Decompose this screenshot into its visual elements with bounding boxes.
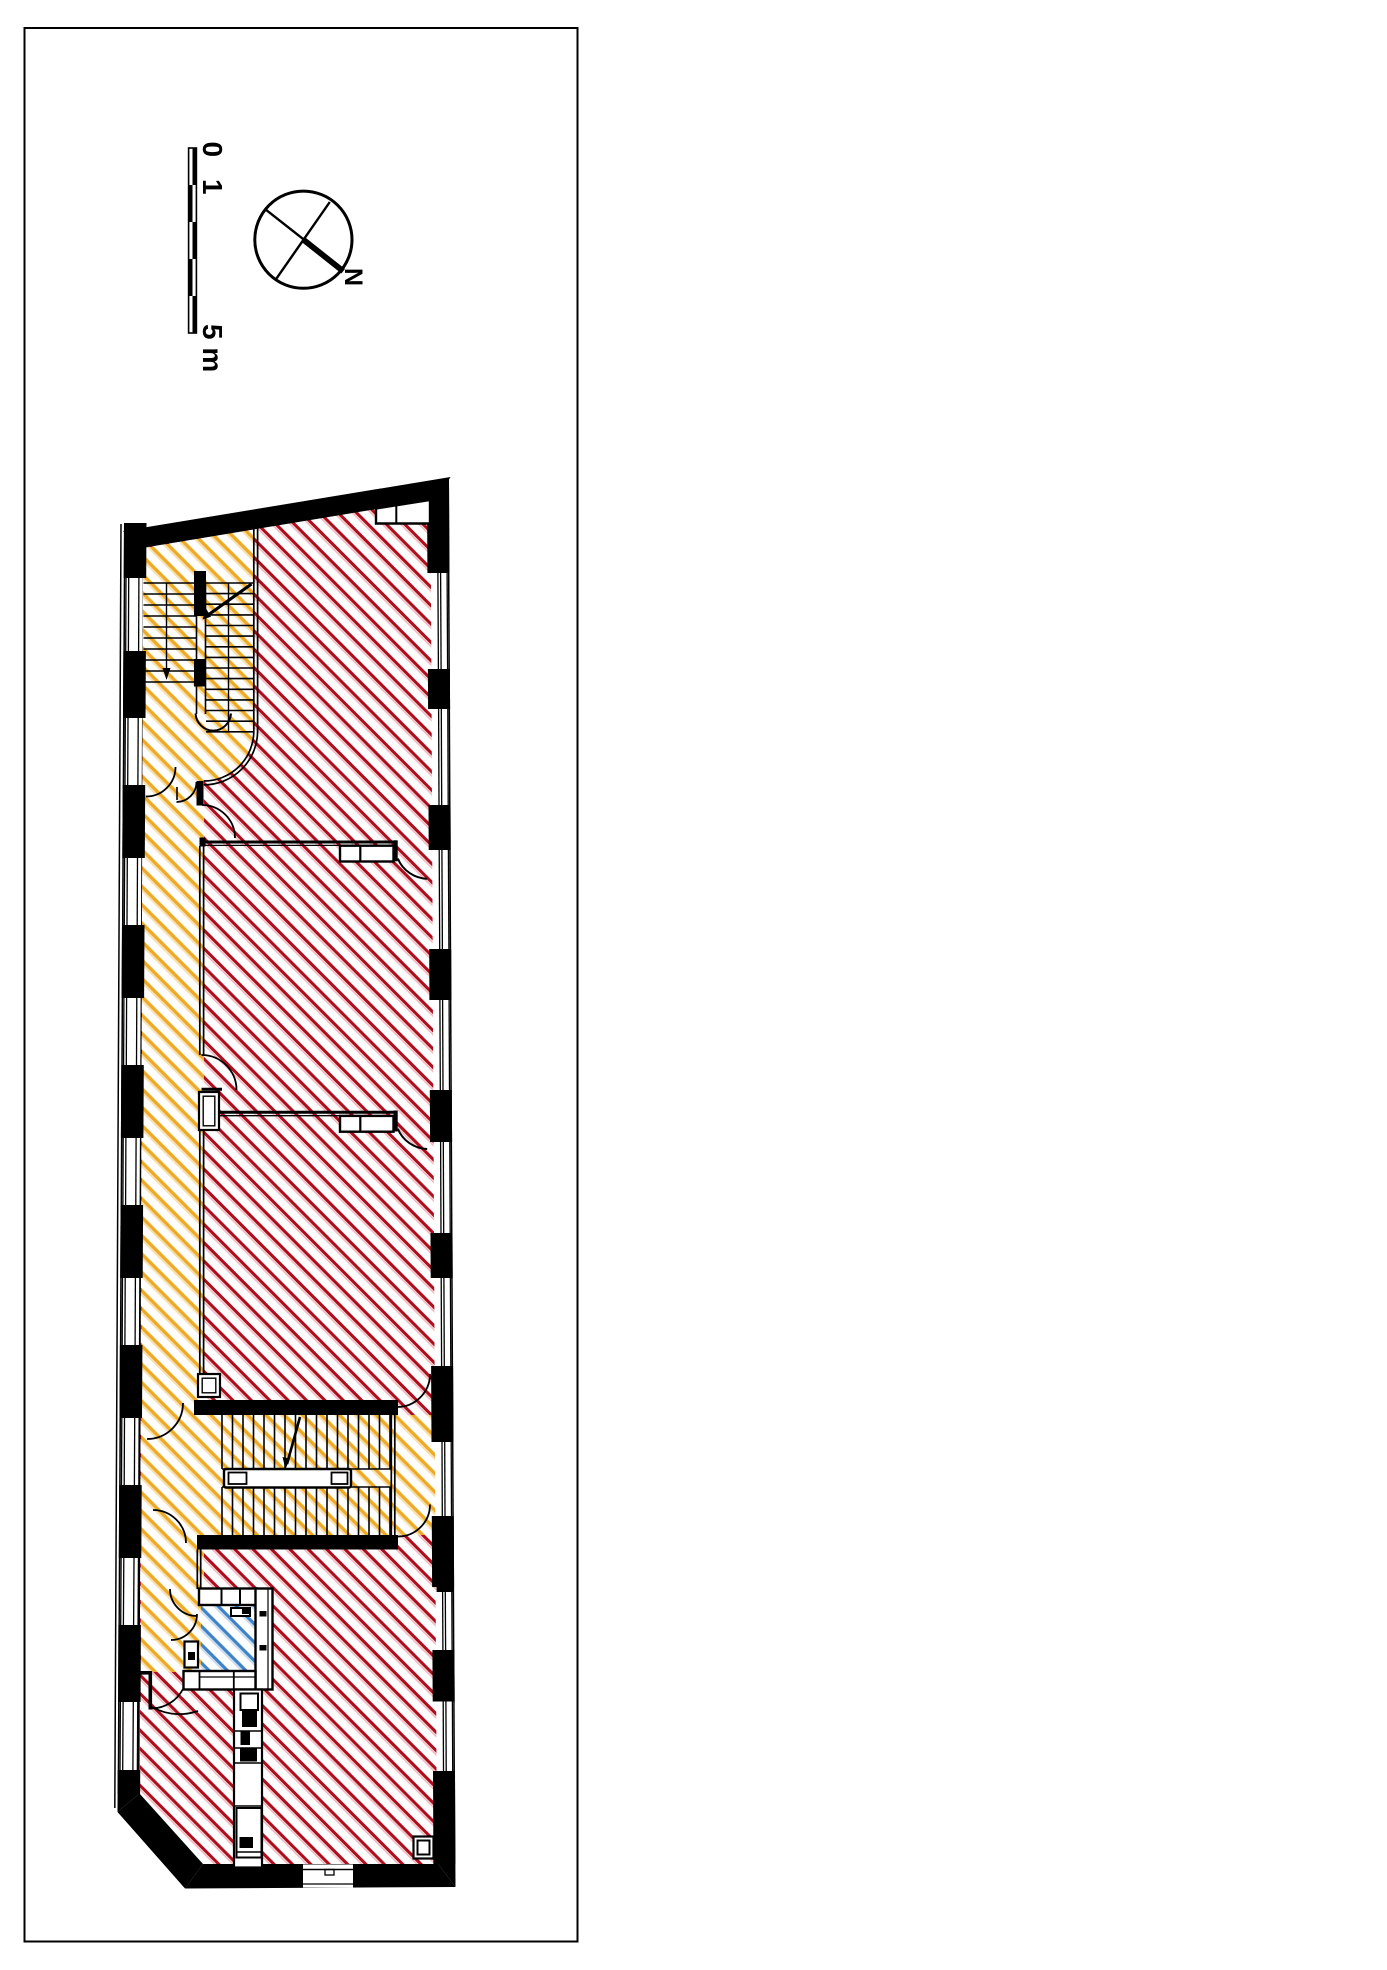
svg-text:5 m: 5 m xyxy=(197,324,228,372)
svg-text:0: 0 xyxy=(197,142,228,158)
svg-text:N: N xyxy=(339,268,367,286)
svg-text:1: 1 xyxy=(197,179,228,195)
